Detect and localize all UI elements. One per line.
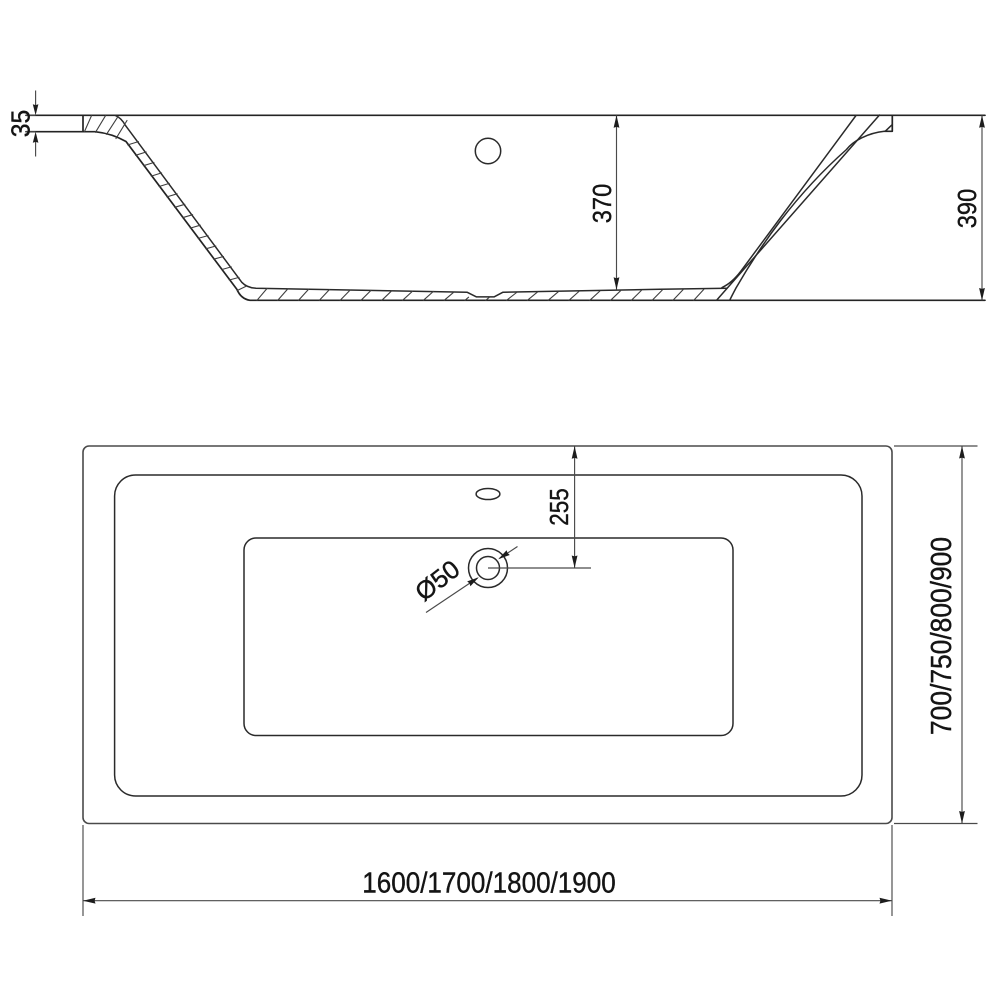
svg-text:1600/1700/1800/1900: 1600/1700/1800/1900 — [362, 868, 616, 900]
svg-text:370: 370 — [589, 184, 617, 224]
svg-text:390: 390 — [954, 189, 982, 229]
svg-text:700/750/800/900: 700/750/800/900 — [926, 537, 958, 735]
svg-text:Ø50: Ø50 — [410, 555, 465, 607]
svg-text:255: 255 — [546, 488, 574, 526]
svg-text:35: 35 — [7, 110, 35, 138]
